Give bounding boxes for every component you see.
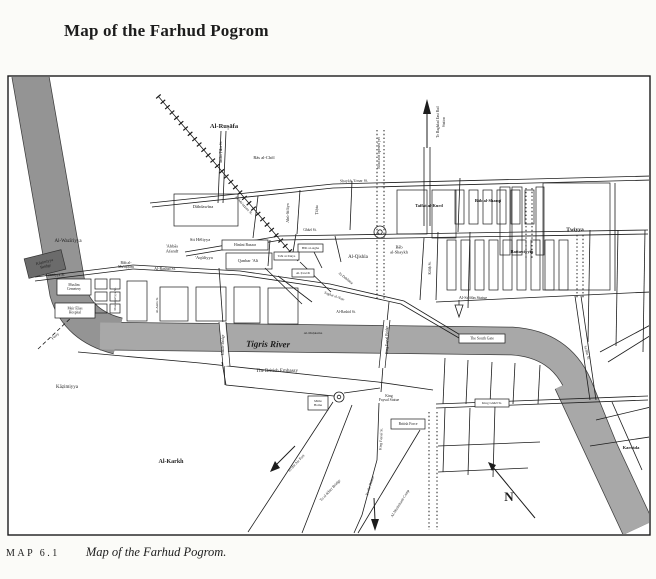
king-faysal-bridge-label: King Faysal Bridge [385,326,389,355]
al-rusafa-label: Al-Ruṣāfa [210,123,239,130]
al-mahkama-label: Al-Maḥkama [304,331,323,335]
al-rashid-st-2-label: Al-Rashid St. [336,310,356,314]
south-gate-label: The South Gate [470,337,494,341]
sit-heliyya-label: Sit Hēliyya [190,237,210,242]
bab-al-muazzam-label: Bāb al-Mu'aẓẓam [118,261,134,269]
muslim-cemetery-box: MuslimCemetery [57,279,91,295]
mede-home-label: MēdeHome [314,399,323,407]
to-east-rail-1-label: To Baghdad East Rail [436,106,440,137]
compass-n-label: N [504,489,514,504]
map-caption: MAP 6.1Map of the Farhud Pogrom. [6,543,226,561]
battawiyyin-label: Battawiyyīn [511,249,534,254]
hinuni-bazaar-label: Hinūni Bazaar [234,243,257,247]
al-tawrat-label: Al-Ṭawrāt [296,271,310,275]
road-not-opened-label: Road not opened yet [377,136,381,168]
british-force-box: British Force [391,419,425,429]
maude-bridge-label: Maude Bridge [221,334,225,355]
kifah-st-label: Kifāḥ St. [428,261,432,274]
abu-sifayn-st-label: Abū-Sifāyn [285,202,290,222]
shaykh-umar-st-label: Shaykh 'Umar St. [340,178,368,183]
al-sadun-statue-label: Al-Sa'dūn Statue [459,295,487,300]
imam-taha-st-label: Imām Ṭāha St. [219,141,223,162]
map-canvas: Al-RuṣāfaRās al-ChōlImām Ṭāha St.Dāhdawī… [0,0,656,579]
taht-al-takya-box: Taht al-Takya [274,252,299,260]
aquliyya-label: 'Aqūliyya [195,255,213,260]
bab-al-agha-label: Bāb al-Agha [302,246,320,250]
kazimiyya-label: Kāẓimiyya [56,385,79,390]
to-east-rail-2-label: Station [442,117,446,127]
map-caption-text: Map of the Farhud Pogrom. [86,545,227,559]
south-gate-box: The South Gate [459,334,505,343]
book-page: Map of the Farhud Pogrom Al-RuṣāfaRās al… [0,0,656,579]
al-karkh-label: Al-Karkh [158,459,184,465]
al-tawrat-box: Al-Ṭawrāt [292,269,314,277]
taffat-al-kurd-label: Taffat al-Kurd [415,203,443,208]
twiyya-label: Ṭwiyya [566,227,584,233]
map-caption-number: MAP 6.1 [6,548,60,559]
mede-home-box: MēdeHome [308,396,328,410]
al-qishla-label: Al-Qishla [348,255,369,260]
muslim-cemetery-label: MuslimCemetery [67,283,81,291]
karrada-label: Karrāda [623,445,640,450]
map-frame [8,76,650,535]
hinuni-bazaar-box: Hinūni Bazaar [222,240,268,250]
meir-elias-hospital-label: Meir EliasHospital [67,307,83,315]
ghazi-st-label: Ghāzī St. [303,228,316,232]
bab-al-sharqi-label: Bāb al-Sharqī [475,198,502,203]
bab-al-agha-box: Bāb al-Agha [298,244,323,252]
qanbar-ali-label: Qanbar 'Ali [238,258,259,263]
abbas-afandi-label: 'AbbāsAfandī [166,243,179,253]
tahta-st-label: Ṭāḥta [314,205,319,215]
ras-al-chol-label: Rās al-Chōl [253,155,275,160]
al-amin-st-label: Al-Amīn St. [155,297,159,313]
taht-al-takya-label: Taht al-Takya [278,254,296,258]
al-waziriyya-label: Al-Wazīriyya [54,239,82,244]
mustansiriyya-st-label: Mustanṣiriyya St. [113,287,117,310]
tigris-river-label: Tigris River [246,339,291,350]
meir-elias-hospital-box: Meir EliasHospital [55,303,95,318]
al-rashid-st-label: Al-Rashid St. [154,266,176,271]
british-embassy-label: The British Embassy [256,369,298,374]
british-force-label: British Force [399,422,418,426]
king-ghazi-st-box: King Ghāzī St. [475,399,509,407]
dahdawina-label: Dāhdawīna [193,204,214,209]
king-ghazi-st-label: King Ghāzī St. [482,401,502,405]
